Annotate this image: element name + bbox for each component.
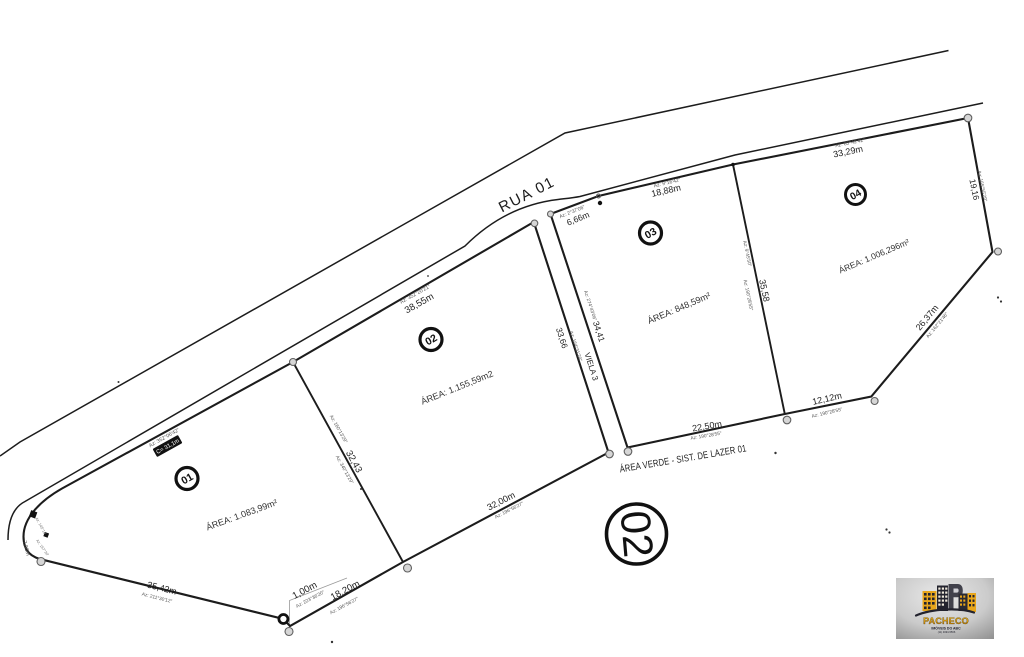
svg-text:PACHECO: PACHECO xyxy=(923,616,969,626)
svg-text:02: 02 xyxy=(612,509,663,560)
svg-text:(11) 4994-5566: (11) 4994-5566 xyxy=(938,630,956,634)
svg-text:IMÓVEIS DO ABC: IMÓVEIS DO ABC xyxy=(931,625,961,630)
